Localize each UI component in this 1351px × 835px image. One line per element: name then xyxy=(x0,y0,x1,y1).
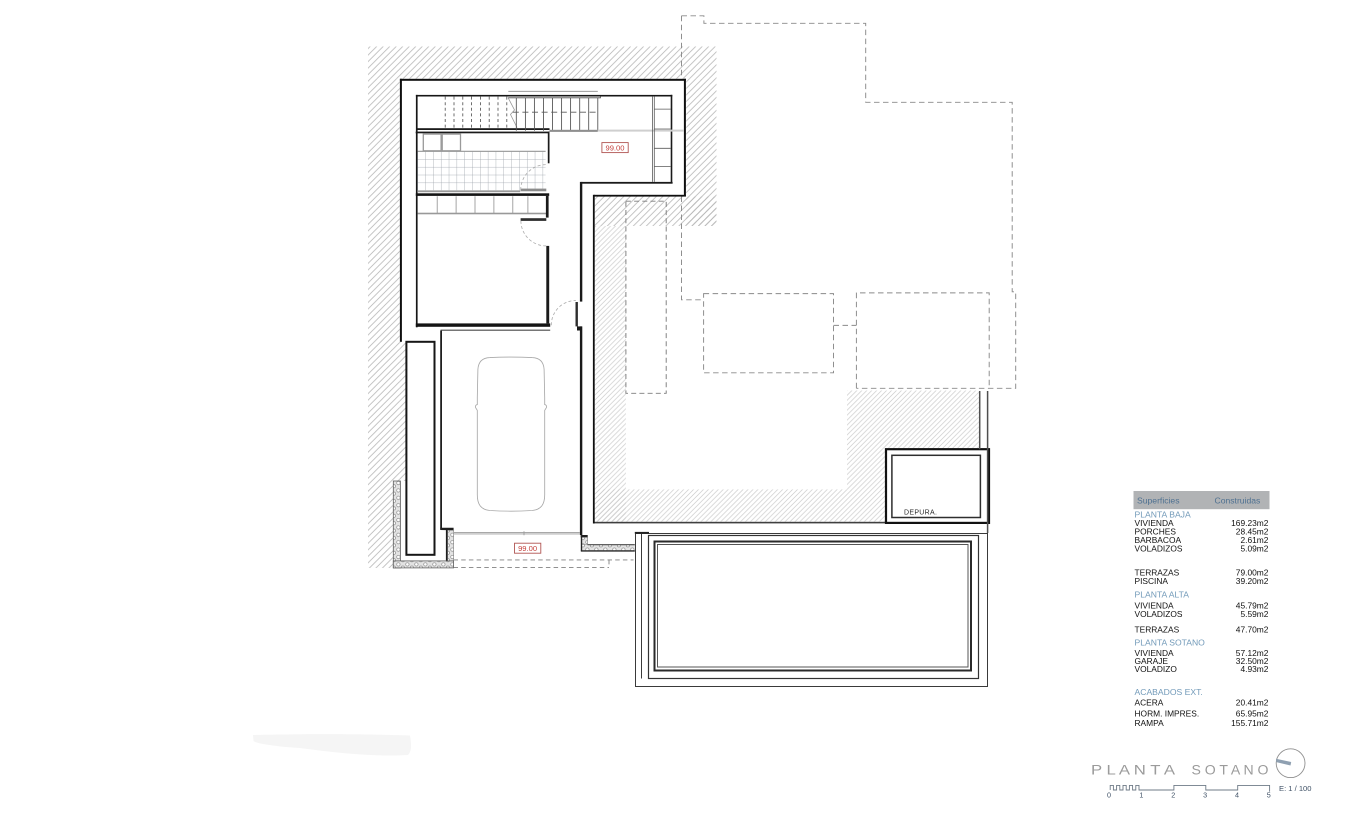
svg-text:2: 2 xyxy=(1171,791,1175,800)
svg-text:ACERA: ACERA xyxy=(1135,698,1164,708)
svg-text:4: 4 xyxy=(1235,791,1239,800)
svg-text:5.59m2: 5.59m2 xyxy=(1240,609,1268,619)
svg-text:TERRAZAS: TERRAZAS xyxy=(1135,624,1180,634)
svg-text:PISCINA: PISCINA xyxy=(1135,576,1169,586)
svg-text:S O T A N O: S O T A N O xyxy=(1192,763,1269,778)
svg-text:VOLADIZOS: VOLADIZOS xyxy=(1135,609,1183,619)
svg-text:VOLADIZO: VOLADIZO xyxy=(1135,664,1178,674)
svg-text:3: 3 xyxy=(1203,791,1207,800)
svg-text:0: 0 xyxy=(1107,791,1111,800)
svg-text:PLANTA ALTA: PLANTA ALTA xyxy=(1135,589,1190,599)
svg-text:RAMPA: RAMPA xyxy=(1135,718,1165,728)
svg-text:1: 1 xyxy=(1139,791,1143,800)
svg-text:Superficies: Superficies xyxy=(1137,496,1180,506)
svg-text:Construidas: Construidas xyxy=(1215,496,1261,506)
svg-text:99.00: 99.00 xyxy=(605,144,624,153)
svg-text:DEPURA.: DEPURA. xyxy=(904,509,937,516)
svg-text:39.20m2: 39.20m2 xyxy=(1236,576,1269,586)
svg-text:20.41m2: 20.41m2 xyxy=(1236,698,1269,708)
svg-text:99.00: 99.00 xyxy=(518,544,537,553)
svg-text:4.93m2: 4.93m2 xyxy=(1240,664,1268,674)
svg-text:PLANTA SOTANO: PLANTA SOTANO xyxy=(1135,637,1206,647)
svg-text:155.71m2: 155.71m2 xyxy=(1231,718,1269,728)
svg-text:VOLADIZOS: VOLADIZOS xyxy=(1135,543,1183,553)
svg-text:E: 1 / 100: E: 1 / 100 xyxy=(1279,784,1312,793)
svg-text:P L A N T A: P L A N T A xyxy=(1091,763,1175,778)
svg-text:5: 5 xyxy=(1267,791,1271,800)
svg-text:47.70m2: 47.70m2 xyxy=(1236,624,1269,634)
svg-text:5.09m2: 5.09m2 xyxy=(1240,543,1268,553)
svg-text:ACABADOS EXT.: ACABADOS EXT. xyxy=(1135,687,1203,697)
